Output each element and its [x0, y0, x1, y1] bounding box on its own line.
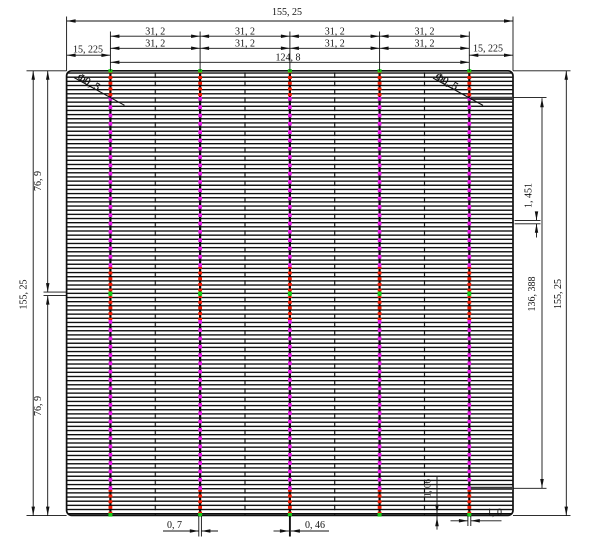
svg-text:0, 7: 0, 7 — [167, 520, 182, 531]
svg-text:76, 9: 76, 9 — [33, 396, 44, 416]
svg-text:1, 0: 1, 0 — [487, 507, 502, 518]
svg-text:31, 2: 31, 2 — [145, 38, 165, 49]
svg-text:31, 2: 31, 2 — [325, 26, 345, 37]
svg-text:31, 2: 31, 2 — [235, 38, 255, 49]
svg-text:136, 388: 136, 388 — [527, 277, 538, 312]
svg-text:124, 8: 124, 8 — [276, 52, 301, 63]
svg-text:15, 225: 15, 225 — [473, 43, 503, 54]
svg-text:1, 06: 1, 06 — [423, 479, 433, 498]
svg-text:31, 2: 31, 2 — [235, 26, 255, 37]
svg-text:31, 2: 31, 2 — [415, 26, 435, 37]
svg-text:31, 2: 31, 2 — [325, 38, 345, 49]
svg-text:0, 46: 0, 46 — [305, 520, 325, 531]
svg-text:76, 9: 76, 9 — [33, 171, 44, 191]
svg-text:155, 25: 155, 25 — [553, 279, 564, 309]
svg-text:31, 2: 31, 2 — [145, 26, 165, 37]
svg-text:15, 225: 15, 225 — [73, 44, 103, 55]
svg-text:1, 451: 1, 451 — [524, 183, 535, 208]
svg-text:31, 2: 31, 2 — [415, 38, 435, 49]
svg-text:155, 25: 155, 25 — [272, 7, 302, 18]
svg-text:155, 25: 155, 25 — [19, 280, 30, 310]
